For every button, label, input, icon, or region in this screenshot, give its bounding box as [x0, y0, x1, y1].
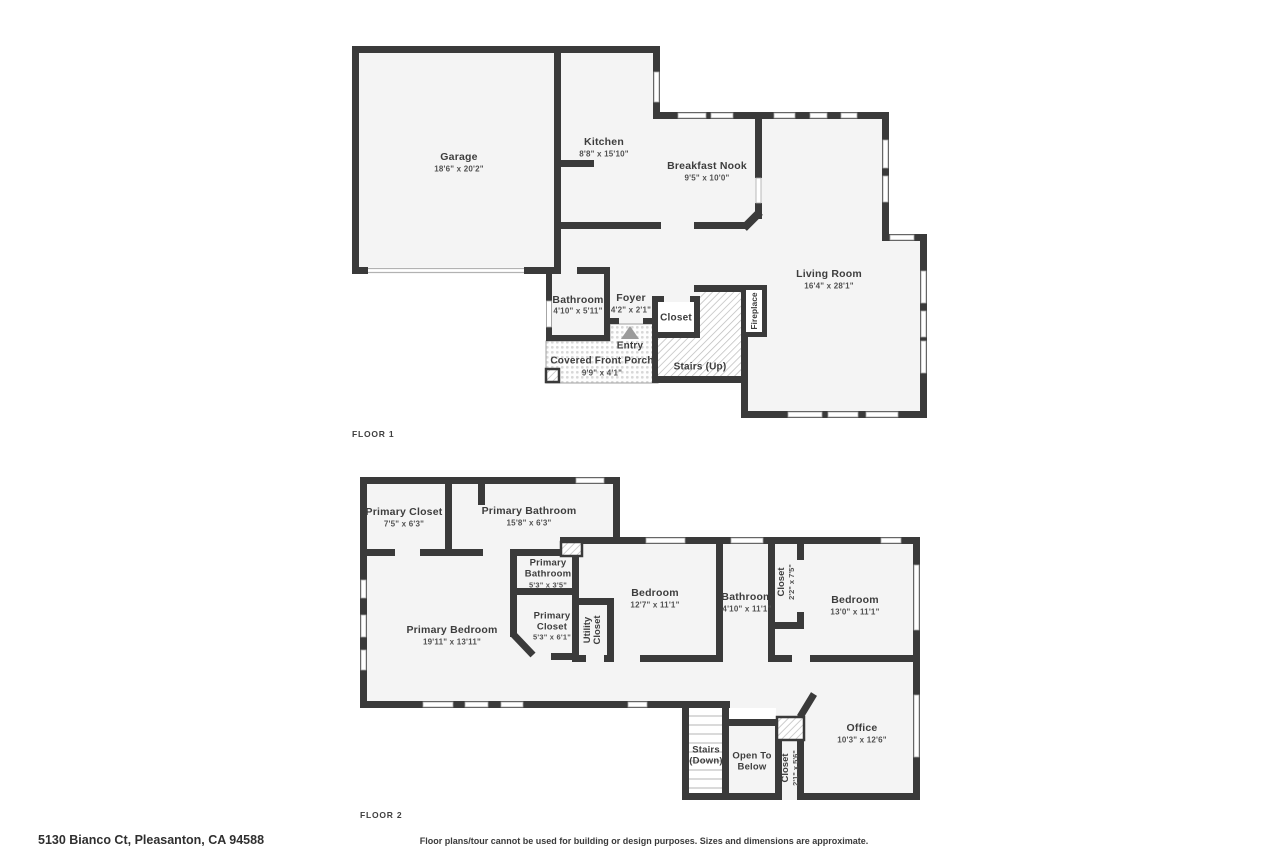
room-dims-living-room: 16'4" x 28'1" — [804, 282, 854, 291]
room-dims-breakfast-nook: 9'5" x 10'0" — [685, 174, 730, 183]
room-dims-kitchen: 8'8" x 15'10" — [579, 150, 629, 159]
room-label-closet-bottom: Closet 2'1" x 5'6" — [781, 750, 801, 786]
room-label-living-room: Living Room — [796, 268, 862, 280]
floor1-label: FLOOR 1 — [352, 429, 394, 439]
room-label-fireplace: Fireplace — [749, 292, 759, 329]
room-label-garage: Garage — [440, 151, 477, 163]
fireplace-text: Fireplace — [749, 292, 759, 329]
room-label-stairs-down-1: Stairs — [692, 745, 720, 756]
closet-hall-dims: 2'2" x 7'5" — [787, 564, 797, 600]
room-label-porch: Covered Front Porch — [550, 356, 653, 367]
room-dims-bathroom1: 4'10" x 5'11" — [553, 307, 602, 316]
room-label-utility-closet: Utility Closet — [583, 615, 603, 644]
room-dims-porch: 9'9" x 4'1" — [582, 369, 622, 378]
room-label-entry: Entry — [617, 341, 644, 352]
room-dims-garage: 18'6" x 20'2" — [434, 165, 484, 174]
room-dims-primary-bedroom: 19'11" x 13'11" — [423, 638, 481, 647]
room-label-primary-closet-small-2: Closet — [537, 622, 567, 633]
utility-closet-line2: Closet — [593, 615, 603, 644]
room-label-primary-bathroom-small-1: Primary — [530, 558, 567, 569]
room-label-bedroom-right: Bedroom — [831, 594, 879, 606]
room-label-foyer: Foyer — [616, 292, 646, 304]
room-dims-foyer: 4'2" x 2'1" — [611, 306, 651, 315]
room-label-office: Office — [847, 722, 878, 734]
porch-post — [546, 369, 559, 382]
room-dims-office: 10'3" x 12'6" — [837, 736, 887, 745]
room-label-closet-hall: Closet 2'2" x 7'5" — [777, 564, 797, 600]
room-label-kitchen: Kitchen — [584, 136, 624, 148]
room-label-bedroom-left: Bedroom — [631, 587, 679, 599]
room-label-open-to-below-2: Below — [738, 762, 767, 773]
room-label-breakfast-nook: Breakfast Nook — [667, 160, 747, 172]
room-dims-primary-closet: 7'5" x 6'3" — [384, 520, 424, 529]
room-label-bathroom1: Bathroom — [552, 294, 603, 306]
room-label-closet1: Closet — [660, 313, 692, 324]
room-label-primary-closet: Primary Closet — [366, 506, 443, 518]
property-address: 5130 Bianco Ct, Pleasanton, CA 94588 — [38, 833, 264, 847]
room-dims-primary-bathroom: 15'8" x 6'3" — [507, 519, 552, 528]
room-label-stairs-up: Stairs (Up) — [674, 362, 727, 373]
room-label-primary-bedroom: Primary Bedroom — [406, 624, 497, 636]
garage-door — [368, 267, 524, 274]
room-dims-bedroom-right: 13'0" x 11'1" — [830, 608, 879, 617]
chimney-hatch-bottom — [777, 717, 804, 740]
room-dims-bathroom2: 4'10" x 11'1" — [722, 605, 771, 614]
room-dims-primary-closet-small: 5'3" x 6'1" — [533, 633, 571, 642]
room-label-primary-bathroom-small-2: Bathroom — [525, 569, 571, 580]
room-label-stairs-down-2: (Down) — [689, 756, 722, 767]
chimney-hatch-top — [561, 542, 582, 556]
floorplan-canvas — [0, 0, 1280, 853]
floor2-label: FLOOR 2 — [360, 810, 402, 820]
room-dims-bedroom-left: 12'7" x 11'1" — [630, 601, 679, 610]
room-label-bathroom2: Bathroom — [721, 591, 772, 603]
disclaimer-text: Floor plans/tour cannot be used for buil… — [420, 836, 869, 846]
closet-bottom-dims: 2'1" x 5'6" — [791, 750, 801, 786]
void-strip — [729, 708, 776, 719]
room-dims-primary-bathroom-small: 5'3" x 3'5" — [529, 581, 567, 590]
closet-hall-name: Closet — [777, 567, 787, 596]
floorplan-page: { "footer": { "address": "5130 Bianco Ct… — [0, 0, 1280, 853]
room-label-primary-bathroom: Primary Bathroom — [482, 505, 577, 517]
closet-bottom-name: Closet — [781, 753, 791, 782]
room-label-open-to-below-1: Open To — [732, 751, 771, 762]
room-label-primary-closet-small-1: Primary — [534, 611, 571, 622]
